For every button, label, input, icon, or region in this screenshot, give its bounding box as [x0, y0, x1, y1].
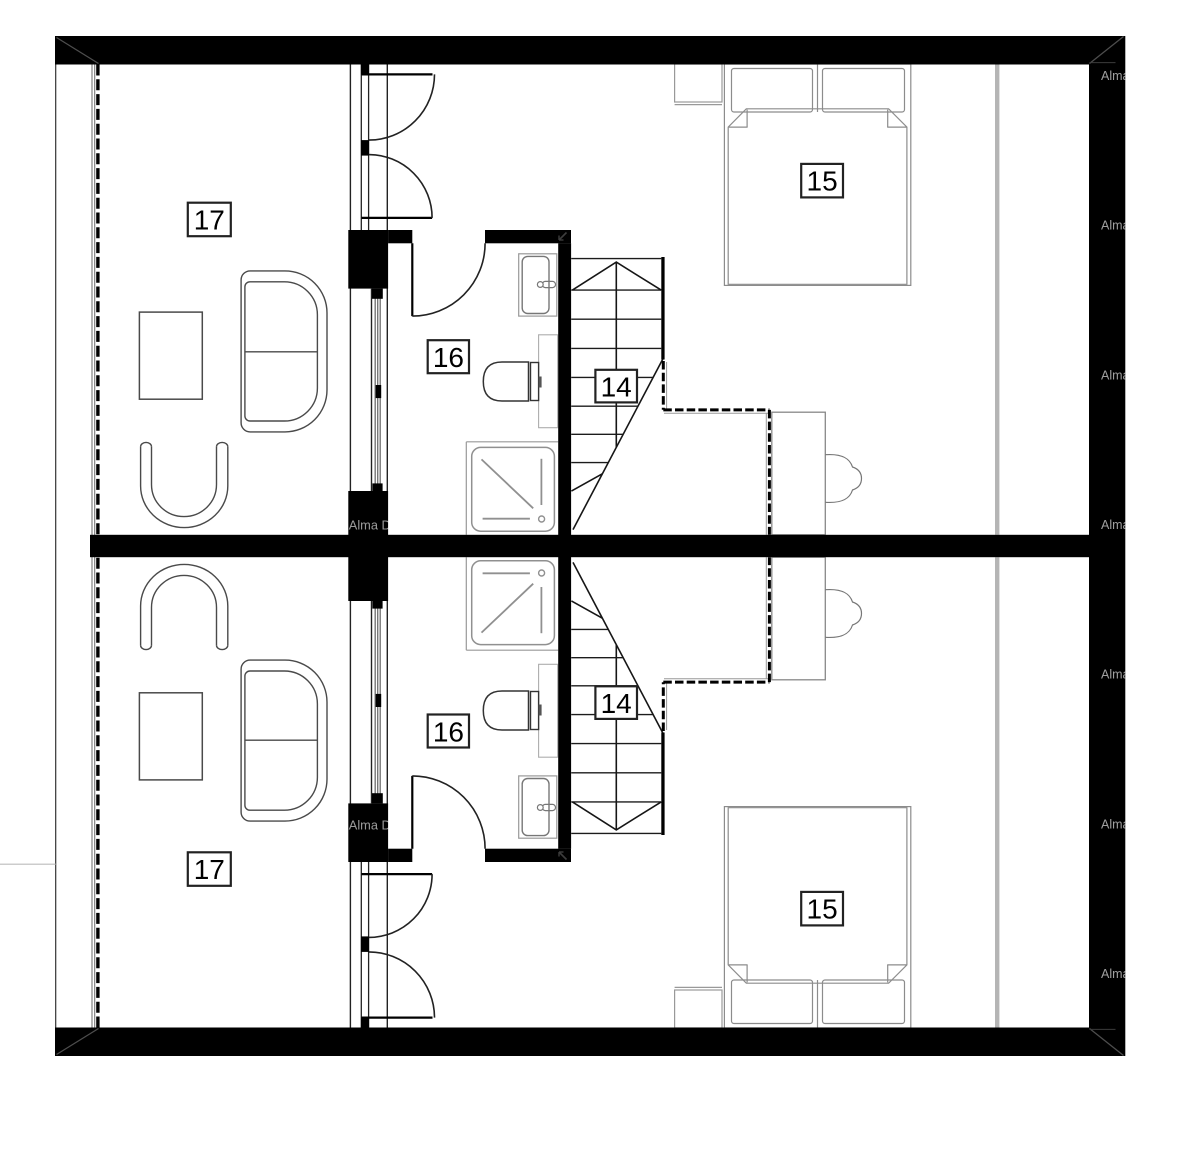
svg-text:17: 17: [194, 854, 225, 885]
svg-text:16: 16: [433, 716, 464, 747]
svg-text:17: 17: [194, 205, 225, 236]
svg-text:14: 14: [601, 688, 632, 719]
svg-text:15: 15: [807, 894, 838, 925]
svg-text:15: 15: [807, 166, 838, 197]
svg-text:14: 14: [601, 371, 632, 402]
svg-text:16: 16: [433, 342, 464, 373]
